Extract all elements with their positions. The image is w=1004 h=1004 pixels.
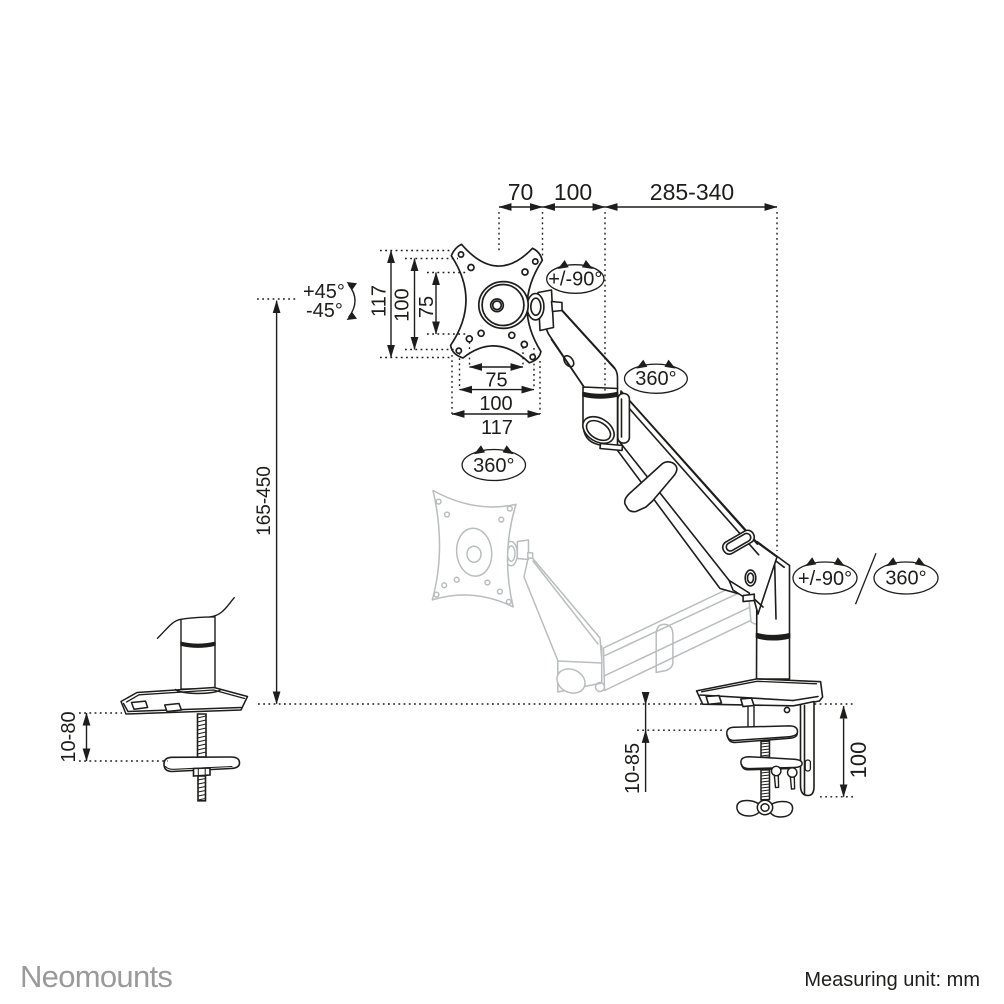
svg-text:10-80: 10-80 (58, 711, 80, 762)
svg-text:70: 70 (508, 179, 534, 205)
svg-text:Neomounts: Neomounts (20, 959, 172, 994)
svg-text:360°: 360° (473, 455, 514, 477)
svg-text:165-450: 165-450 (254, 466, 275, 536)
svg-text:+/-90°: +/-90° (548, 269, 602, 291)
svg-text:+/-90°: +/-90° (798, 568, 852, 590)
svg-text:360°: 360° (635, 368, 676, 390)
svg-text:10-85: 10-85 (622, 743, 644, 794)
svg-text:117: 117 (481, 417, 513, 439)
svg-text:100: 100 (479, 393, 512, 415)
svg-text:100: 100 (846, 742, 871, 779)
svg-text:285-340: 285-340 (650, 179, 734, 205)
svg-text:Measuring unit: mm: Measuring unit: mm (804, 969, 980, 991)
svg-text:75: 75 (485, 369, 507, 391)
svg-text:75: 75 (416, 296, 438, 318)
svg-text:100: 100 (554, 179, 592, 205)
svg-text:117: 117 (369, 285, 391, 317)
svg-text:-45°: -45° (306, 300, 343, 322)
svg-text:100: 100 (392, 288, 414, 321)
svg-text:360°: 360° (885, 568, 926, 590)
